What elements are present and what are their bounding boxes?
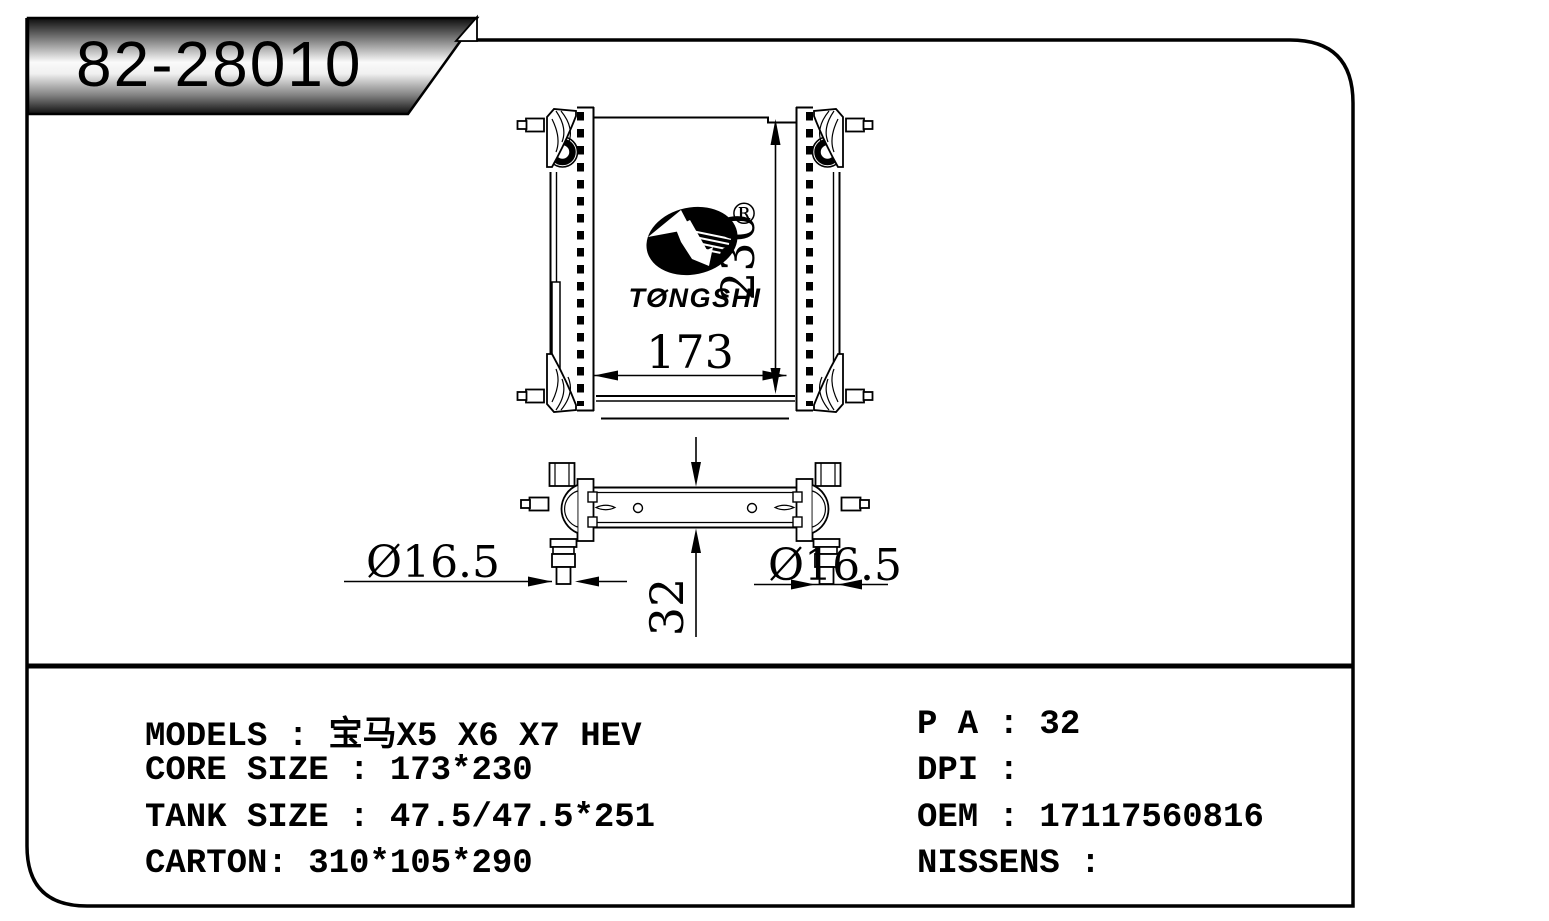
left-side-plate	[577, 107, 594, 411]
dim-right-pipe-label: Ø16.5	[768, 540, 902, 591]
bracket-bottom-right	[814, 354, 873, 412]
dimension-thickness-32: 32	[640, 437, 701, 637]
left-end-fitting	[521, 463, 597, 584]
dim-width-label: 173	[646, 325, 734, 379]
left-tank	[551, 172, 561, 372]
spec-nissens: NISSENS :	[917, 845, 1101, 883]
radiator-spec-sheet: ® TONGSHI 173 230 32	[0, 0, 1549, 921]
dimension-width-173: 173	[594, 325, 787, 381]
right-side-plate	[796, 107, 813, 411]
spec-carton: CARTON: 310*105*290	[145, 845, 533, 883]
part-number: 82-28010	[76, 27, 416, 101]
bracket-bottom-left	[518, 354, 577, 412]
dimension-right-pipe: Ø16.5	[754, 540, 902, 591]
spec-oem: OEM : 17117560816	[917, 799, 1264, 837]
right-tank	[834, 172, 840, 372]
dim-height-label: 230	[711, 213, 765, 301]
dim-thickness-label: 32	[640, 578, 694, 637]
dimension-left-pipe: Ø16.5	[344, 537, 627, 588]
spec-core-size: CORE SIZE : 173*230	[145, 752, 533, 790]
spec-tank-size: TANK SIZE : 47.5/47.5*251	[145, 799, 655, 837]
spec-dpi: DPI :	[917, 752, 1019, 790]
spec-models: MODELS : 宝马X5 X6 X7 HEV	[145, 706, 641, 756]
dim-left-pipe-label: Ø16.5	[366, 537, 500, 588]
spec-pa: P A : 32	[917, 706, 1080, 744]
